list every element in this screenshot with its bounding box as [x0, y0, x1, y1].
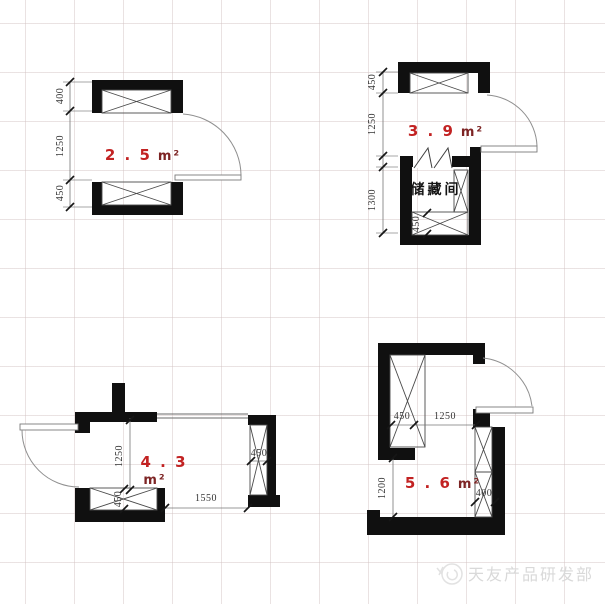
area-label: 5 . 6m²	[405, 474, 481, 492]
wall-segments	[367, 343, 505, 535]
door	[481, 95, 537, 152]
dim-label-450: 450	[367, 74, 378, 91]
door-leaf	[476, 407, 533, 413]
wardrobe-symbol	[475, 427, 492, 517]
wardrobe-symbol	[410, 73, 468, 93]
dim-label-1550: 1550	[195, 493, 217, 504]
door-swing-arc	[483, 358, 532, 406]
room-name-label: 储藏间	[410, 181, 462, 198]
dimension-column: 450 1250 1300	[367, 68, 398, 237]
plan-storage-3-9: 450 450 1250 1300 3 . 9m² 储藏间	[367, 62, 537, 245]
area-unit-label: m²	[143, 473, 166, 488]
door-leaf	[175, 175, 241, 180]
dim-label-1250: 1250	[434, 411, 456, 422]
dim-label-1250: 1250	[55, 135, 66, 157]
plan-closet-4-3: 1250 450 1550 450 4 . 3 m²	[20, 383, 280, 522]
door-swing-arc	[487, 95, 537, 146]
dim-label-450: 450	[113, 491, 124, 508]
door-swing-arc	[183, 114, 241, 175]
watermark-text: 天友产品研发部	[468, 565, 594, 584]
area-label: 4 . 3	[140, 453, 187, 471]
area-label: 2 . 5m²	[105, 146, 181, 164]
dimension-horizontal-1550: 1550	[161, 493, 252, 512]
watermark: 天友产品研发部	[437, 564, 594, 584]
door	[20, 424, 79, 487]
watermark-logo-icon	[437, 564, 462, 584]
dim-label-450-inner: 450	[411, 216, 422, 233]
door-leaf	[481, 146, 537, 152]
floorplan-sheet: 400 1250 450 2 . 5m²	[0, 0, 605, 604]
dim-label-450: 450	[394, 411, 411, 422]
dimension-vertical-1250: 1250	[114, 416, 134, 494]
door	[476, 358, 533, 413]
dim-label-1200: 1200	[377, 477, 388, 499]
wardrobe-symbol	[102, 90, 171, 113]
dim-label-1300: 1300	[367, 189, 378, 211]
wardrobe-symbol	[102, 182, 171, 205]
folding-door-flap	[414, 148, 432, 168]
folding-door-flap	[434, 148, 452, 168]
door	[175, 114, 241, 180]
dimension-horizontal-top: 450 1250	[387, 411, 480, 429]
plan-closet-2-5: 400 1250 450 2 . 5m²	[55, 78, 241, 215]
folding-door	[414, 148, 452, 168]
dimension-column: 400 1250 450	[55, 78, 92, 211]
door-leaf	[20, 424, 78, 430]
door-swing-arc	[22, 430, 79, 487]
dim-label-1250: 1250	[367, 113, 378, 135]
dim-label-450: 450	[55, 185, 66, 202]
inner-dimension-450: 450	[411, 209, 431, 238]
area-label: 3 . 9m²	[408, 122, 484, 140]
dimension-shelf-450: 450	[113, 485, 128, 513]
dim-label-450: 450	[251, 448, 268, 459]
plan-closet-5-6: 450 1250 1200 400 5 . 6m²	[367, 343, 533, 535]
dim-label-1250: 1250	[114, 445, 125, 467]
wardrobe-symbol	[390, 355, 425, 447]
dim-label-400: 400	[55, 88, 66, 105]
